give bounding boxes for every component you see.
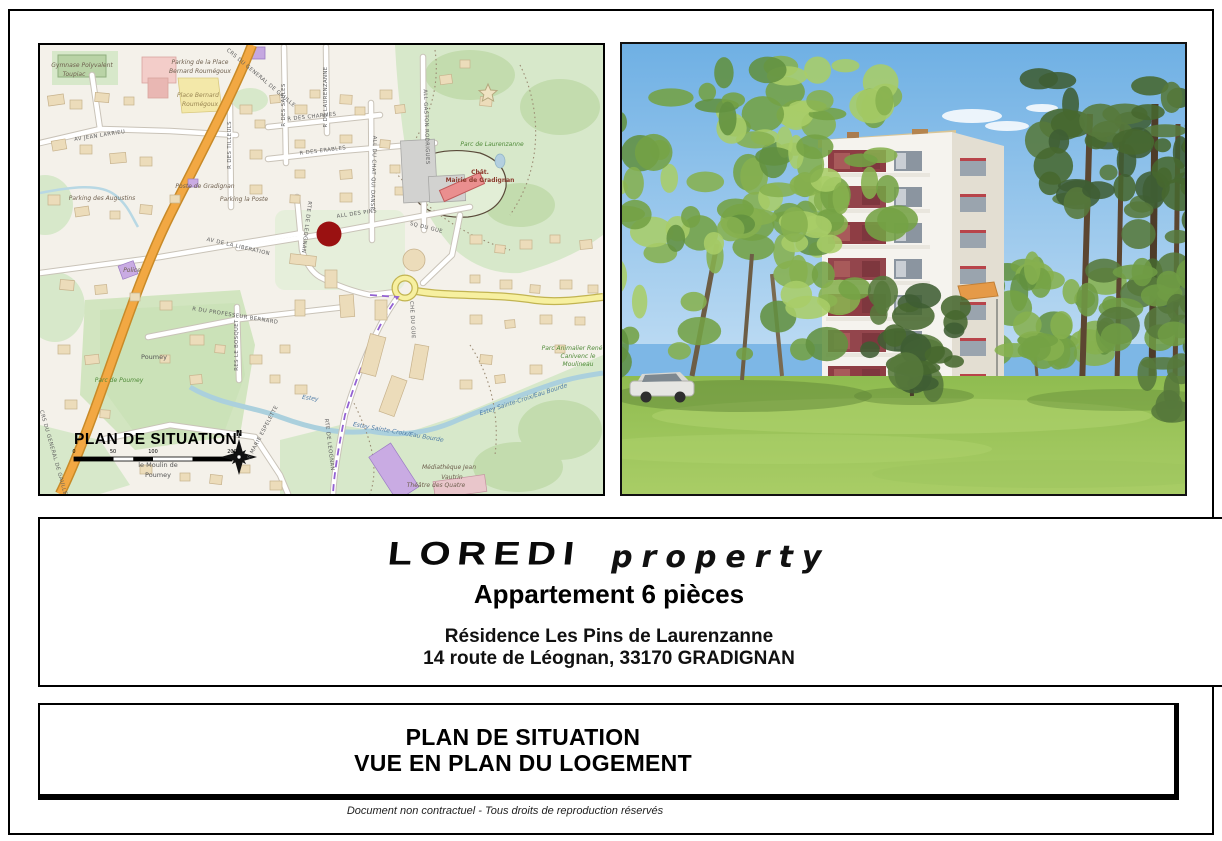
- map-label: Canivenc le: [561, 353, 596, 360]
- map-label: Bernard Roumégoux: [169, 68, 231, 75]
- map-building: [110, 211, 120, 219]
- map-building: [540, 315, 552, 324]
- banner-line-1: PLAN DE SITUATION: [354, 724, 692, 750]
- map-label: Médiathèque Jean: [422, 464, 476, 471]
- map-building: [470, 275, 480, 283]
- map-building: [124, 97, 134, 105]
- photo-image: [622, 44, 1185, 494]
- map-building: [160, 301, 172, 310]
- banner-line-2: VUE EN PLAN DU LOGEMENT: [354, 750, 692, 776]
- map-building: [495, 245, 506, 254]
- map-building: [250, 355, 262, 364]
- map-building: [460, 380, 472, 389]
- map-label: Vautrin: [441, 474, 463, 481]
- map-building: [250, 150, 262, 159]
- map-building: [65, 400, 77, 409]
- map-building: [340, 135, 352, 143]
- map-building: [390, 165, 400, 173]
- building-photo: [620, 42, 1187, 496]
- map-label: le Moulin de: [138, 461, 178, 469]
- map-label: R DES TILLEULS: [227, 121, 233, 169]
- listing-info-box: LOREDI property Appartement 6 pièces Rés…: [38, 517, 1222, 687]
- map-label: 50: [110, 449, 116, 455]
- map-building: [170, 195, 180, 203]
- map-building: [70, 100, 82, 109]
- map-label: Police: [123, 267, 141, 274]
- map-building: [500, 280, 512, 289]
- map-building: [575, 317, 585, 325]
- map-label: 200: [227, 449, 237, 455]
- map-label: Parc de Poumey: [95, 377, 144, 384]
- map-building: [190, 335, 204, 345]
- map-label: N: [236, 429, 242, 438]
- map-building: [280, 345, 290, 353]
- map-label: Place Bernard: [177, 92, 219, 99]
- map-building: [210, 474, 223, 484]
- map-label: 100: [148, 449, 158, 455]
- map-building: [60, 279, 75, 290]
- map-building: [470, 315, 482, 324]
- map-building: [95, 284, 108, 294]
- map-label: Poste de Gradignan: [175, 183, 234, 190]
- map-label: Parking des Augustins: [69, 195, 136, 202]
- map-building: [95, 92, 110, 102]
- map-label: Parking la Poste: [220, 196, 268, 203]
- map-building: [215, 345, 226, 354]
- map-label: Poumey: [145, 471, 171, 479]
- map-building: [480, 354, 493, 364]
- map-building: [505, 320, 516, 329]
- map-label: 0: [72, 449, 75, 455]
- agency-logo-main: LOREDI: [386, 537, 583, 571]
- map-building: [295, 300, 305, 316]
- map-building: [100, 410, 111, 419]
- map-building: [325, 270, 337, 288]
- map-label: Poumey: [141, 353, 167, 361]
- map-building: [295, 140, 305, 148]
- situation-map: PLAN DE SITUATION050100200NGymnase Polyv…: [38, 43, 605, 496]
- map-building: [51, 139, 67, 151]
- map-label: Roumégoux: [182, 101, 218, 108]
- map-building: [255, 120, 265, 128]
- map-building: [340, 193, 352, 202]
- map-building: [355, 107, 365, 115]
- map-building: [375, 300, 387, 320]
- map-building: [130, 293, 140, 301]
- map-building: [460, 60, 470, 68]
- map-building: [270, 375, 280, 383]
- map-building: [530, 365, 542, 374]
- section-banner-text: PLAN DE SITUATION VUE EN PLAN DU LOGEMEN…: [354, 724, 692, 776]
- map-building: [140, 204, 153, 214]
- map-label: Toupiac: [63, 71, 87, 78]
- map-building: [48, 195, 60, 205]
- map-building: [580, 239, 593, 249]
- section-banner: PLAN DE SITUATION VUE EN PLAN DU LOGEMEN…: [38, 703, 1179, 800]
- map-building: [520, 240, 532, 249]
- map-building: [80, 145, 92, 154]
- map-building: [339, 295, 355, 318]
- map-label: Moulineau: [563, 361, 594, 368]
- map-building: [380, 90, 392, 99]
- map-building: [470, 235, 482, 244]
- location-marker-dot: [317, 222, 342, 247]
- map-building: [190, 374, 203, 384]
- street-address: 14 route de Léognan, 33170 GRADIGNAN: [40, 648, 1178, 670]
- map-building: [310, 90, 320, 98]
- map-label: Théâtre des Quatre: [407, 482, 466, 489]
- map-building: [380, 140, 391, 149]
- map-building: [85, 354, 100, 364]
- map-building: [290, 195, 300, 204]
- map-image: PLAN DE SITUATION050100200NGymnase Polyv…: [40, 45, 603, 494]
- agency-logo-sub: property: [611, 540, 830, 575]
- map-building: [560, 280, 572, 289]
- map-label: Gymnase Polyvalent: [51, 62, 113, 69]
- residence-name: Résidence Les Pins de Laurenzanne: [40, 626, 1178, 648]
- map-building: [250, 185, 262, 194]
- document-page: PLAN DE SITUATION050100200NGymnase Polyv…: [0, 0, 1222, 841]
- map-label: PLAN DE SITUATION: [74, 431, 237, 448]
- map-building: [495, 374, 506, 383]
- map-building: [270, 481, 282, 490]
- map-building: [340, 95, 352, 105]
- map-building: [47, 94, 64, 106]
- map-building: [295, 170, 305, 178]
- map-building: [110, 152, 127, 163]
- map-label: Mairie de Gradignan: [446, 177, 515, 184]
- agency-logo: LOREDI property: [40, 533, 1178, 577]
- map-building: [550, 235, 560, 243]
- listing-title: Appartement 6 pièces: [40, 579, 1178, 610]
- map-building: [295, 385, 307, 394]
- map-building: [588, 285, 598, 293]
- map-label: RES LE BOSQUET: [234, 319, 240, 371]
- map-building: [295, 105, 307, 114]
- map-building: [180, 473, 190, 481]
- map-building: [240, 105, 252, 114]
- map-label: Chât.: [471, 169, 489, 176]
- map-building: [439, 74, 452, 85]
- map-building: [395, 104, 406, 113]
- map-label: Parking de la Place: [171, 59, 228, 66]
- map-label: Parc Animalier René: [542, 345, 603, 352]
- map-label: Parc de Laurenzanne: [460, 141, 524, 148]
- listing-address: Résidence Les Pins de Laurenzanne 14 rou…: [40, 626, 1178, 670]
- legal-footer: Document non contractuel - Tous droits d…: [305, 805, 705, 817]
- map-building: [74, 206, 89, 217]
- map-building: [340, 170, 353, 180]
- map-building: [58, 345, 70, 354]
- map-building: [530, 285, 541, 294]
- map-building: [140, 157, 152, 166]
- map-label: R DES SAULES: [281, 83, 287, 126]
